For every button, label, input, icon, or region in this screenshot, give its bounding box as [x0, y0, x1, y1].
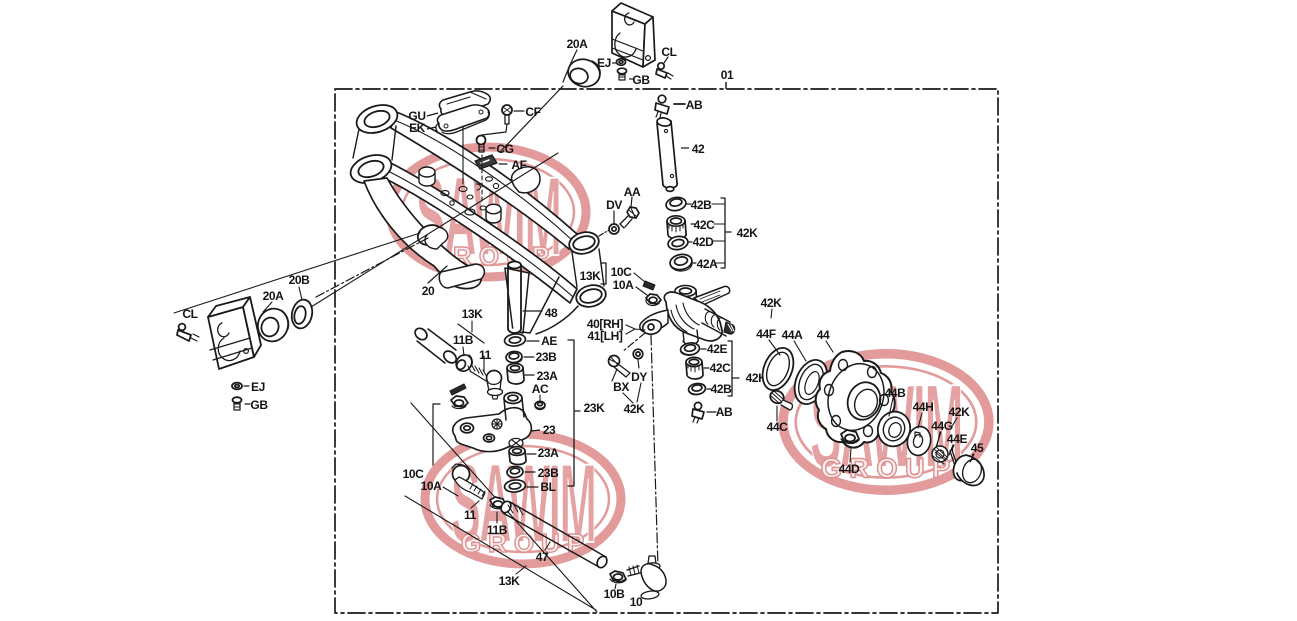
svg-text:20A: 20A — [567, 37, 589, 51]
svg-text:42K: 42K — [737, 226, 759, 240]
svg-text:11: 11 — [479, 348, 492, 362]
svg-text:42B: 42B — [691, 198, 713, 212]
svg-text:AA: AA — [624, 185, 641, 199]
svg-text:42D: 42D — [693, 235, 715, 249]
svg-text:20B: 20B — [289, 273, 311, 287]
svg-text:44F: 44F — [756, 327, 776, 341]
svg-text:44G: 44G — [931, 419, 953, 433]
svg-text:CG: CG — [496, 142, 513, 156]
svg-text:AF: AF — [511, 158, 526, 172]
svg-text:13K: 13K — [499, 574, 521, 588]
svg-text:EK: EK — [409, 121, 426, 135]
svg-text:11: 11 — [464, 508, 477, 522]
svg-text:42C: 42C — [710, 361, 732, 375]
svg-text:BX: BX — [613, 380, 629, 394]
svg-text:48: 48 — [545, 306, 558, 320]
svg-text:CL: CL — [661, 45, 676, 59]
svg-text:BL: BL — [540, 480, 555, 494]
svg-text:DY: DY — [631, 370, 647, 384]
svg-text:41[LH]: 41[LH] — [588, 329, 623, 343]
svg-text:44C: 44C — [767, 420, 789, 434]
svg-text:10C: 10C — [611, 265, 633, 279]
svg-text:42C: 42C — [694, 218, 716, 232]
svg-text:GB: GB — [250, 398, 268, 412]
svg-text:42A: 42A — [697, 257, 719, 271]
svg-text:23B: 23B — [536, 350, 558, 364]
svg-text:GB: GB — [632, 73, 650, 87]
svg-text:AB: AB — [686, 98, 703, 112]
svg-text:DV: DV — [606, 198, 622, 212]
svg-text:AC: AC — [532, 382, 549, 396]
svg-text:13K: 13K — [462, 307, 484, 321]
svg-text:20A: 20A — [263, 289, 285, 303]
svg-text:23B: 23B — [538, 466, 560, 480]
svg-text:AE: AE — [541, 334, 557, 348]
svg-text:45: 45 — [971, 441, 984, 455]
svg-text:10B: 10B — [604, 587, 626, 601]
svg-text:20: 20 — [422, 284, 435, 298]
svg-text:42K: 42K — [624, 402, 646, 416]
svg-text:EJ: EJ — [251, 380, 265, 394]
svg-text:42: 42 — [692, 142, 705, 156]
svg-text:23K: 23K — [584, 401, 606, 415]
svg-text:42K: 42K — [949, 405, 971, 419]
svg-text:42K: 42K — [761, 296, 783, 310]
svg-text:44B: 44B — [885, 386, 907, 400]
svg-text:44E: 44E — [947, 432, 968, 446]
svg-text:23A: 23A — [537, 369, 559, 383]
svg-text:11B: 11B — [487, 523, 508, 537]
svg-text:11B: 11B — [453, 333, 474, 347]
svg-text:23: 23 — [543, 423, 556, 437]
svg-text:42E: 42E — [707, 342, 728, 356]
svg-text:CF: CF — [525, 105, 540, 119]
svg-text:42B: 42B — [711, 382, 733, 396]
svg-text:44D: 44D — [839, 462, 861, 476]
svg-text:CL: CL — [182, 307, 197, 321]
svg-text:13K: 13K — [580, 269, 602, 283]
svg-text:44A: 44A — [782, 328, 804, 342]
svg-text:44H: 44H — [913, 400, 934, 414]
svg-text:01: 01 — [721, 68, 734, 82]
svg-text:47: 47 — [536, 550, 549, 564]
svg-text:10A: 10A — [613, 278, 635, 292]
svg-text:10: 10 — [630, 595, 643, 609]
svg-text:AB: AB — [716, 405, 733, 419]
svg-text:44: 44 — [817, 328, 830, 342]
svg-text:10A: 10A — [421, 479, 443, 493]
svg-text:EJ: EJ — [597, 56, 611, 70]
svg-text:23A: 23A — [538, 446, 560, 460]
